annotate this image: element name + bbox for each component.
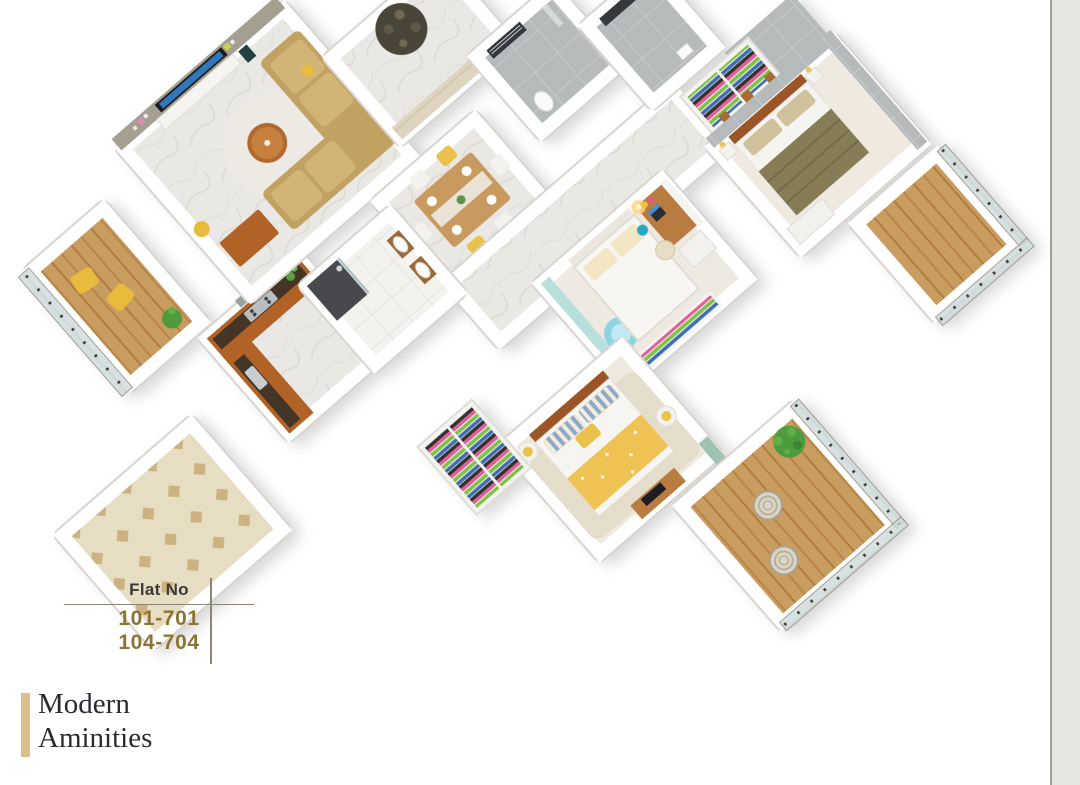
flat-number-2: 104-704 (64, 631, 254, 655)
page: Flat No 101-701 104-704 Modern Aminities (0, 0, 1080, 785)
flat-number-1: 101-701 (64, 607, 254, 631)
page-edge-strip (1050, 0, 1080, 785)
floor-plan-render (0, 0, 1080, 785)
flat-info-vertical-rule (210, 578, 212, 664)
caption-line-1: Modern (38, 688, 152, 722)
southeast-balcony (677, 399, 908, 631)
wardrobe-unit-yellow (418, 400, 531, 515)
caption-line-2: Aminities (38, 722, 152, 756)
caption-block: Modern Aminities (21, 688, 152, 757)
flat-info-divider (64, 604, 254, 605)
west-balcony (18, 206, 204, 397)
flat-no-label: Flat No (64, 580, 254, 600)
caption-text: Modern Aminities (38, 688, 152, 756)
caption-gold-bar (21, 693, 30, 757)
flat-info-block: Flat No 101-701 104-704 (64, 580, 254, 655)
